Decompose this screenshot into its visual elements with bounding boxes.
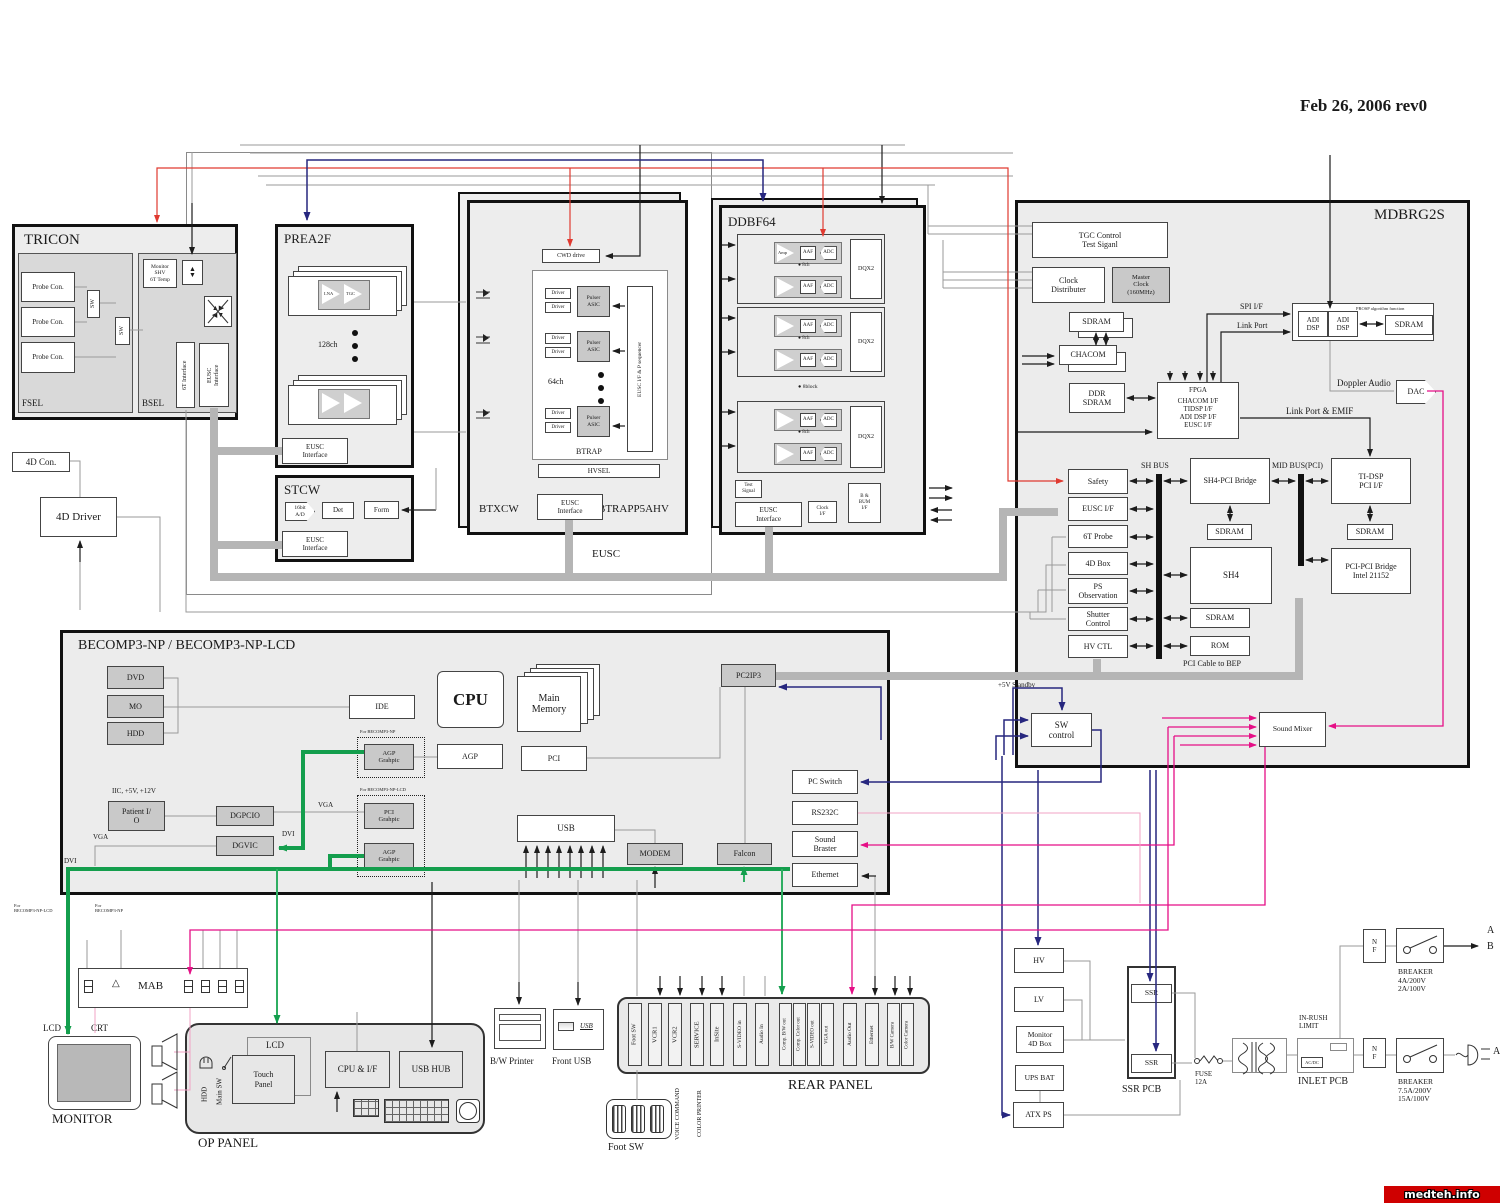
vga-label: VGA — [93, 833, 108, 841]
form-box: Form — [364, 501, 399, 519]
dqx2-box: DQX2 — [850, 239, 882, 299]
inlet-pcb-label: INLET PCB — [1298, 1076, 1348, 1088]
voice-command-label: VOICE COMMAND — [672, 1080, 685, 1148]
foot-sw-label: Foot SW — [608, 1142, 644, 1154]
inlet-relay-icon — [1330, 1043, 1347, 1051]
adi-dsp-box: ADI DSP — [1328, 311, 1358, 337]
rear-port-svideo-in: S-VIDEO in — [733, 1003, 747, 1066]
prea2f-block — [275, 224, 414, 468]
tricon-eusc-interface: EUSC Interface — [199, 343, 229, 407]
monitor-screen — [57, 1044, 131, 1102]
pc2ip3-box: PC2IP3 — [721, 664, 776, 687]
rom-box: ROM — [1190, 636, 1250, 656]
transformer-box — [1232, 1038, 1287, 1073]
printer-tray — [499, 1024, 541, 1041]
trackball-icon — [459, 1102, 477, 1120]
pulser-asic-box: Pulser ASIC — [577, 286, 610, 317]
triangle-icon: △ — [112, 978, 120, 990]
probe-connector-2: Probe Con. — [21, 307, 75, 337]
eusc-if-box: EUSC I/F — [1068, 497, 1128, 521]
op-cpu-if-box: CPU & I/F — [325, 1051, 390, 1088]
pci-box: PCI — [521, 746, 587, 771]
hv-box: HV — [1014, 948, 1064, 973]
chacom-box: CHACOM — [1059, 345, 1117, 365]
aaf-box: AAF — [800, 246, 816, 260]
crt-label: CRT — [91, 1023, 108, 1033]
hdd-box: HDD — [107, 722, 164, 745]
modem-box: MODEM — [627, 843, 683, 865]
ssr-box-2: SSR — [1131, 1054, 1172, 1073]
touch-panel-box: Touch Panel — [232, 1055, 295, 1104]
keyboard-icon — [384, 1099, 449, 1123]
front-usb-text: USB — [580, 1022, 593, 1030]
8ch-label: ● 8ch — [798, 430, 810, 436]
cwd-drive-box: CWD drive — [542, 249, 600, 263]
ddbf64-title: DDBF64 — [728, 215, 776, 230]
usb-port-icon — [558, 1022, 574, 1031]
sound-braster-box: Sound Braster — [792, 831, 858, 857]
sdram-box: SDRAM — [1385, 315, 1433, 335]
8block-label: ● 8block — [798, 384, 818, 390]
mid-bus-bar — [1298, 474, 1304, 566]
amp-label: Amp — [778, 250, 787, 255]
link-port-label: Link Port — [1237, 321, 1267, 330]
printer-slot — [499, 1014, 541, 1021]
sdram-box: SDRAM — [1207, 524, 1252, 540]
ps-observation-box: PS Observation — [1068, 578, 1128, 604]
fpga-interfaces: CHACOM I/F TIDSP I/F ADI DSP I/F EUSC I/… — [1178, 397, 1219, 429]
btrapp5ahv-label: BTRAPP5AHV — [598, 503, 669, 516]
for-np-note: For BECOMP3-NP — [95, 903, 123, 913]
sw-box-2: SW — [115, 317, 130, 345]
adi-dsp-box: ADI DSP — [1298, 311, 1328, 337]
iic-label: IIC, +5V, +12V — [112, 787, 156, 795]
rear-port-insite: InSite — [710, 1003, 724, 1066]
inrush-label: IN-RUSH LIMIT — [1299, 1014, 1327, 1030]
lv-box: LV — [1014, 987, 1064, 1012]
agp-box: AGP — [437, 744, 503, 769]
ti-dsp-box: TI-DSP PCI I/F — [1331, 458, 1411, 504]
4d-con-box: 4D Con. — [12, 452, 70, 472]
dgpcio-box: DGPCIO — [216, 806, 274, 826]
pulser-asic-box: Pulser ASIC — [577, 406, 610, 437]
op-lcd-label: LCD — [266, 1040, 284, 1050]
shutter-control-box: Shutter Control — [1068, 607, 1128, 631]
page-title: Feb 26, 2006 rev0 — [1300, 96, 1470, 118]
sdram-box: SDRAM — [1347, 524, 1393, 540]
ac-in-label: A — [1493, 1046, 1500, 1058]
agp-graphic-box: AGP Grahpic — [364, 843, 414, 869]
aaf-box: AAF — [800, 413, 816, 427]
driver-box: Driver — [545, 422, 571, 433]
keypad-icon — [353, 1099, 379, 1117]
eusc-sequencer-box: EUSC I/F & P sequencer — [627, 286, 653, 452]
aaf-box: AAF — [800, 319, 816, 333]
prea2f-title: PREA2F — [284, 232, 331, 247]
doppler-audio-label: Doppler Audio — [1337, 378, 1391, 388]
for-lcd-note: For BECOMP3-NP-LCD — [14, 903, 53, 913]
mdbrg2s-title: MDBRG2S — [1374, 207, 1445, 224]
prea2f-eusc-interface: EUSC Interface — [282, 438, 348, 464]
spi-if-label: SPI I/F — [1240, 302, 1263, 311]
connector-icon — [235, 980, 244, 993]
ddbf-eusc-interface: EUSC Interface — [735, 502, 802, 527]
driver-box: Driver — [545, 347, 571, 358]
fpga-title: FPGA — [1189, 386, 1207, 394]
usb-hub-box: USB HUB — [399, 1051, 463, 1088]
aaf-box: AAF — [800, 353, 816, 367]
fsel-label: FSEL — [22, 398, 43, 408]
ac-out-a-label: A — [1487, 925, 1494, 937]
sh4-pci-bridge-box: SH4-PCI Bridge — [1190, 458, 1270, 504]
connector-icon — [184, 980, 193, 993]
watermark: medteh.info — [1384, 1186, 1500, 1203]
rear-port-footsw: Foot SW — [628, 1003, 642, 1066]
rear-port-vga-out: VGA out — [821, 1003, 834, 1066]
rear-port-service: SERVICE — [690, 1003, 704, 1066]
dvi-label: DVI — [282, 830, 294, 838]
sound-mixer-box: Sound Mixer — [1259, 712, 1326, 747]
tgc-label: TGC — [346, 291, 355, 296]
for-lcd-label: For BECOMP3-NP-LCD — [360, 787, 406, 792]
connector-icon — [201, 980, 210, 993]
sw-box-1: SW — [87, 290, 100, 318]
rear-panel-label: REAR PANEL — [788, 1078, 873, 1094]
aaf-box: AAF — [800, 447, 816, 461]
pci-cable-label: PCI Cable to BEP — [1183, 659, 1241, 668]
btxcw-eusc-interface: EUSC Interface — [537, 494, 603, 520]
master-clock-box: Master Clock (160MHz) — [1112, 267, 1170, 303]
pedal-icon — [612, 1105, 626, 1133]
safety-box: Safety — [1068, 469, 1128, 494]
pedal-icon — [631, 1105, 645, 1133]
test-signal-box: Test Signal — [735, 480, 762, 498]
cpu-box: CPU — [437, 671, 504, 728]
op-hdd-label: HDD — [198, 1072, 211, 1116]
ddr-sdram-box: DDR SDRAM — [1069, 383, 1125, 413]
mo-box: MO — [107, 695, 164, 718]
op-panel-label: OP PANEL — [198, 1136, 258, 1151]
ssr-pcb-label: SSR PCB — [1122, 1084, 1161, 1096]
rear-port-audio-in: Audio In — [755, 1003, 769, 1066]
falcon-box: Falcon — [717, 843, 772, 865]
bsel-label: BSEL — [142, 398, 164, 408]
dvd-box: DVD — [107, 666, 164, 689]
det-box: Det — [322, 502, 354, 519]
noise-filter-top: N F — [1363, 929, 1386, 963]
driver-box: Driver — [545, 408, 571, 419]
connector-icon — [84, 980, 93, 993]
aaf-box: AAF — [800, 280, 816, 294]
front-usb-label: Front USB — [552, 1056, 591, 1066]
rear-port-comp-color: Comp. Color out — [793, 1003, 806, 1066]
driver-box: Driver — [545, 333, 571, 344]
atx-ps-box: ATX PS — [1013, 1102, 1064, 1128]
ellipsis-dots — [598, 372, 604, 404]
relay-icon: ▲▶◀▼ — [204, 296, 232, 327]
for-np-label: For BECOMP3-NP — [360, 729, 395, 734]
acdc-box: AC/DC — [1301, 1057, 1323, 1068]
breaker-top-box — [1396, 928, 1444, 963]
6t-probe-box: 6T Probe — [1068, 525, 1128, 548]
sh4-box: SH4 — [1190, 547, 1272, 604]
4d-driver-box: 4D Driver — [40, 497, 117, 537]
dqx2-box: DQX2 — [850, 406, 882, 468]
rear-port-svideo-out: S-VIDEO out — [807, 1003, 820, 1066]
prosp-note: PROSP algorithm function — [1356, 306, 1404, 311]
mab-label: MAB — [138, 980, 163, 993]
rear-port-comp-bw: Comp. B/W out — [779, 1003, 792, 1066]
tricon-6t-interface: 6T Interface — [176, 342, 195, 408]
prea2f-channels-label: 128ch — [318, 340, 338, 349]
rear-port-vcr1: VCR1 — [648, 1003, 662, 1066]
clock-if-box: Clock I/F — [808, 501, 837, 523]
standby-label: +5V Standby — [998, 681, 1035, 689]
sw-control-box: SW control — [1031, 713, 1092, 747]
ac-out-b-label: B — [1487, 941, 1494, 953]
noise-filter-bottom: N F — [1363, 1038, 1386, 1068]
hv-ctl-box: HV CTL — [1068, 635, 1128, 658]
sdram-box: SDRAM — [1069, 312, 1124, 332]
bbum-if-box: B & BUM I/F — [848, 483, 881, 523]
probe-connector-1: Probe Con. — [21, 272, 75, 302]
breaker-top-label: BREAKER 4A/200V 2A/100V — [1398, 968, 1433, 994]
4d-box: 4D Box — [1068, 552, 1128, 575]
dqx2-box: DQX2 — [850, 312, 882, 372]
monitor-4d-box: Monitor 4D Box — [1016, 1026, 1064, 1053]
color-printer-label: COLOR PRINTER — [694, 1080, 707, 1148]
btxcw-channels-label: 64ch — [548, 377, 564, 386]
fpga-box: FPGA CHACOM I/F TIDSP I/F ADI DSP I/F EU… — [1157, 382, 1239, 439]
dgvic-box: DGVIC — [216, 836, 274, 856]
pulser-asic-box: Pulser ASIC — [577, 331, 610, 362]
becomp3-title: BECOMP3-NP / BECOMP3-NP-LCD — [78, 638, 295, 654]
clock-distributer-box: Clock Distributer — [1032, 267, 1105, 303]
ssr-box-1: SSR — [1131, 984, 1172, 1003]
fuse-label: FUSE 12A — [1195, 1070, 1212, 1086]
tgc-control-box: TGC Control Test Siganl — [1032, 222, 1168, 258]
bw-printer-label: B/W Printer — [490, 1056, 534, 1066]
rear-port-audio-out: Audio Out — [843, 1003, 857, 1066]
vga-label: VGA — [318, 801, 333, 809]
monitor-label: MONITOR — [52, 1112, 112, 1127]
rear-panel-body — [617, 997, 930, 1074]
eusc-bus-label: EUSC — [592, 548, 620, 561]
rear-port-bw-camera: B/W Camera — [887, 1003, 900, 1066]
lcd-label: LCD — [43, 1023, 61, 1033]
main-memory-box: Main Memory — [517, 676, 581, 732]
stcw-title: STCW — [284, 483, 320, 498]
tricon-title: TRICON — [24, 232, 80, 249]
lna-label: LNA — [324, 291, 333, 296]
diode-icon: ▲▼ — [182, 260, 203, 285]
sh-bus-label: SH BUS — [1141, 461, 1169, 470]
pci-pci-bridge-box: PCI-PCI Bridge Intel 21152 — [1331, 548, 1411, 594]
breaker-bottom-label: BREAKER 7.5A/200V 15A/100V — [1398, 1078, 1433, 1104]
ups-bat-box: UPS BAT — [1015, 1065, 1064, 1091]
8ch-label: ● 8ch — [798, 263, 810, 269]
sdram-box: SDRAM — [1190, 608, 1250, 628]
driver-box: Driver — [545, 288, 571, 299]
ethernet-box: Ethernet — [792, 863, 858, 887]
ellipsis-dots — [352, 330, 358, 362]
probe-connector-3: Probe Con. — [21, 342, 75, 373]
diagram-canvas: Feb 26, 2006 rev0 EUSC TRICON FSEL BSEL … — [0, 0, 1500, 1203]
connector-icon — [218, 980, 227, 993]
usb-box: USB — [517, 815, 615, 842]
linkport-emif-label: Link Port & EMIF — [1286, 406, 1353, 416]
driver-box: Driver — [545, 302, 571, 313]
pci-graphic-box: PCI Grahpic — [364, 803, 414, 829]
btxcw-label: BTXCW — [479, 503, 519, 516]
pedal-icon — [650, 1105, 664, 1133]
sh-bus-bar — [1156, 474, 1162, 659]
op-mainsw-label: Main SW — [213, 1065, 226, 1117]
hvsel-box: HVSEL — [538, 464, 660, 478]
mid-bus-label: MID BUS(PCI) — [1272, 461, 1323, 470]
patient-io-box: Patient I/ O — [108, 801, 165, 831]
monitor-shv-box: Monitor SHV 6T Temp — [143, 259, 177, 288]
stcw-eusc-interface: EUSC Interface — [282, 531, 348, 557]
ide-box: IDE — [349, 695, 415, 719]
pc-switch-box: PC Switch — [792, 770, 858, 794]
breaker-bottom-box — [1396, 1038, 1444, 1073]
dvi-label: DVI — [64, 857, 76, 865]
8ch-label: ● 8ch — [798, 336, 810, 342]
btrap-label: BTRAP — [576, 447, 602, 456]
agp-graphic-box: AGP Grahpic — [364, 744, 414, 770]
rs232c-box: RS232C — [792, 801, 858, 825]
rear-port-vcr2: VCR2 — [668, 1003, 682, 1066]
rear-port-color-camera: Color Camera — [901, 1003, 914, 1066]
rear-port-ethernet: Ethernet — [865, 1003, 879, 1066]
